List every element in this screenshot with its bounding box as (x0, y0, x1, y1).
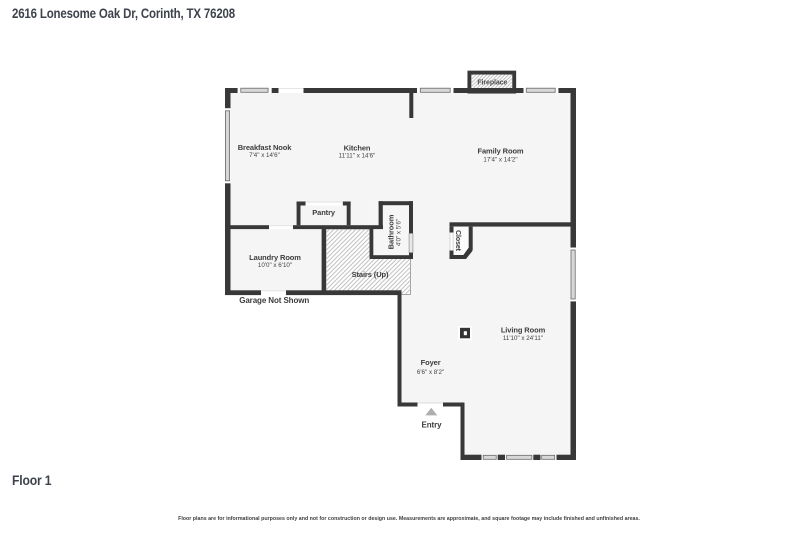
svg-text:Laundry Room: Laundry Room (249, 253, 301, 262)
svg-text:Pantry: Pantry (312, 208, 336, 217)
svg-text:Garage Not Shown: Garage Not Shown (239, 296, 309, 305)
svg-text:10'0" x 6'10": 10'0" x 6'10" (258, 262, 292, 269)
svg-text:Stairs (Up): Stairs (Up) (352, 270, 389, 279)
svg-text:Fireplace: Fireplace (477, 80, 507, 87)
svg-text:Foyer: Foyer (421, 358, 441, 367)
svg-text:17'4" x 14'2": 17'4" x 14'2" (483, 157, 517, 164)
svg-text:Breakfast Nook: Breakfast Nook (238, 143, 293, 152)
svg-text:Closet: Closet (454, 230, 461, 252)
svg-text:Family Room: Family Room (478, 146, 524, 155)
svg-text:Kitchen: Kitchen (344, 143, 371, 152)
svg-text:11'11" x 14'6": 11'11" x 14'6" (339, 152, 376, 159)
svg-text:11'10" x 24'11": 11'10" x 24'11" (503, 335, 543, 342)
svg-text:6'6" x 8'2": 6'6" x 8'2" (417, 369, 444, 376)
svg-text:Bathroom: Bathroom (386, 214, 395, 249)
svg-text:Entry: Entry (422, 420, 443, 429)
svg-text:Living Room: Living Room (501, 325, 546, 334)
svg-text:7'4" x 14'6": 7'4" x 14'6" (249, 152, 280, 159)
svg-text:4'0" x 5'6": 4'0" x 5'6" (395, 219, 402, 246)
